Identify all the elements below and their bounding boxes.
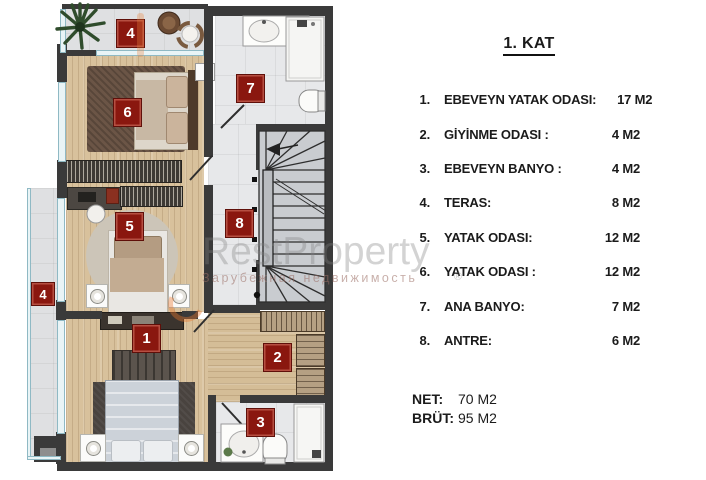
legend-row-number: 2. — [412, 127, 430, 142]
wardrobe-icon — [260, 311, 325, 332]
window — [96, 50, 204, 56]
net-value: 70 M2 — [458, 391, 497, 407]
legend-row-label: ANTRE: — [444, 333, 584, 348]
legend-row: 5. YATAK ODASI: 12 M2 — [412, 230, 640, 245]
legend-row: 3. EBEVEYN BANYO : 4 M2 — [412, 161, 640, 176]
pillow-icon — [143, 440, 173, 462]
brut-label: BRÜT: — [412, 409, 458, 428]
legend-row-label: TERAS: — [444, 195, 584, 210]
legend-row-label: YATAK ODASI: — [444, 230, 584, 245]
lamp-icon — [184, 441, 199, 456]
terrace-railing — [62, 4, 208, 9]
nightstand — [168, 284, 190, 308]
headboard-bedroom-6 — [188, 70, 198, 150]
legend-row-label: EBEVEYN YATAK ODASI: — [444, 92, 596, 107]
legend-panel: 1. KAT 1. EBEVEYN YATAK ODASI: 17 M2 2. … — [398, 26, 660, 456]
nightstand — [178, 434, 204, 462]
legend-row-number: 6. — [412, 264, 430, 279]
utility-box-handle — [40, 448, 56, 456]
legend-row-area: 6 M2 — [584, 333, 640, 348]
legend-row-number: 4. — [412, 195, 430, 210]
terrace-left-floor — [28, 188, 60, 458]
bathroom-7-floor — [215, 15, 325, 131]
lamp-icon — [86, 441, 101, 456]
tv-console-drawer — [108, 316, 122, 324]
room-badge-ebeveyn-banyo: 3 — [247, 409, 274, 436]
blanket-bedroom-5 — [110, 258, 164, 292]
wall — [64, 311, 102, 319]
room-badge-giyinme: 2 — [264, 344, 291, 371]
wall — [182, 311, 198, 319]
room-badge-ebeveyn-yatak: 1 — [133, 325, 160, 352]
wall — [204, 185, 213, 313]
terrace-glass-railing — [60, 9, 66, 53]
headboard-master — [112, 350, 176, 382]
nightstand — [86, 284, 108, 308]
net-total: NET:70 M2 — [412, 390, 497, 409]
pillow-icon — [166, 76, 188, 108]
legend-row-area: 7 M2 — [584, 299, 640, 314]
legend-row-label: GİYİNME ODASI : — [444, 127, 584, 142]
brut-value: 95 M2 — [458, 410, 497, 426]
legend-row: 4. TERAS: 8 M2 — [412, 195, 640, 210]
legend-row-area: 4 M2 — [584, 161, 640, 176]
laptop-icon — [78, 192, 96, 202]
lamp-icon — [172, 289, 187, 304]
legend-row-label: EBEVEYN BANYO : — [444, 161, 584, 176]
stair-direction-arrow-icon — [266, 143, 298, 156]
legend-row-number: 7. — [412, 299, 430, 314]
legend-row-area: 8 M2 — [584, 195, 640, 210]
legend-row-area: 17 M2 — [596, 92, 652, 107]
wall — [208, 395, 216, 465]
legend-title-text: 1. KAT — [503, 35, 554, 56]
legend-row-number: 8. — [412, 333, 430, 348]
wall — [256, 124, 263, 170]
wall — [212, 305, 260, 313]
wall — [204, 6, 333, 16]
wall — [325, 6, 333, 470]
room-badge-yatak-5: 5 — [116, 213, 143, 240]
wardrobe-icon — [296, 334, 325, 367]
lamp-icon — [90, 289, 105, 304]
legend-totals: NET:70 M2 BRÜT:95 M2 — [412, 390, 497, 428]
legend-row: 6. YATAK ODASI : 12 M2 — [412, 264, 640, 279]
legend-row-number: 3. — [412, 161, 430, 176]
legend-row-area: 12 M2 — [584, 230, 640, 245]
wall — [204, 6, 213, 157]
legend-row-area: 4 M2 — [584, 127, 640, 142]
terrace-glass-railing — [27, 456, 61, 460]
room-badge-ana-banyo: 7 — [237, 75, 264, 102]
room-badge-antre: 8 — [226, 210, 253, 237]
net-label: NET: — [412, 390, 458, 409]
wall — [240, 395, 326, 403]
pillow-icon — [166, 112, 188, 144]
room-badge-teras-top: 4 — [117, 20, 144, 47]
room-badge-yatak-6: 6 — [114, 99, 141, 126]
window — [58, 82, 66, 162]
legend-row-area: 12 M2 — [584, 264, 640, 279]
legend-row: 1. EBEVEYN YATAK ODASI: 17 M2 — [412, 92, 640, 107]
bookshelf-icon — [120, 186, 183, 207]
window — [57, 198, 65, 302]
pillow-icon — [111, 440, 141, 462]
legend-row-label: ANA BANYO: — [444, 299, 584, 314]
wall — [256, 302, 326, 310]
legend-row-number: 1. — [412, 92, 430, 107]
wall — [57, 160, 67, 198]
bookshelf-icon — [66, 160, 182, 183]
staircase — [259, 131, 326, 302]
red-book-icon — [106, 188, 119, 204]
terrace-glass-railing — [27, 188, 31, 458]
legend-row: 8. ANTRE: 6 M2 — [412, 333, 640, 348]
wall — [256, 124, 326, 132]
legend-title: 1. KAT — [398, 35, 660, 56]
nightstand — [80, 434, 106, 462]
wall — [57, 462, 333, 471]
legend-row-number: 5. — [412, 230, 430, 245]
floor-plan-page: 4 7 6 5 8 4 1 2 3 RestProperty Зарубежна… — [0, 0, 706, 480]
room-badge-teras-left: 4 — [32, 283, 54, 305]
window — [57, 320, 65, 434]
tv-icon — [132, 316, 154, 324]
brut-total: BRÜT:95 M2 — [412, 409, 497, 428]
legend-row: 2. GİYİNME ODASI : 4 M2 — [412, 127, 640, 142]
legend-row-label: YATAK ODASI : — [444, 264, 584, 279]
legend-row: 7. ANA BANYO: 7 M2 — [412, 299, 640, 314]
